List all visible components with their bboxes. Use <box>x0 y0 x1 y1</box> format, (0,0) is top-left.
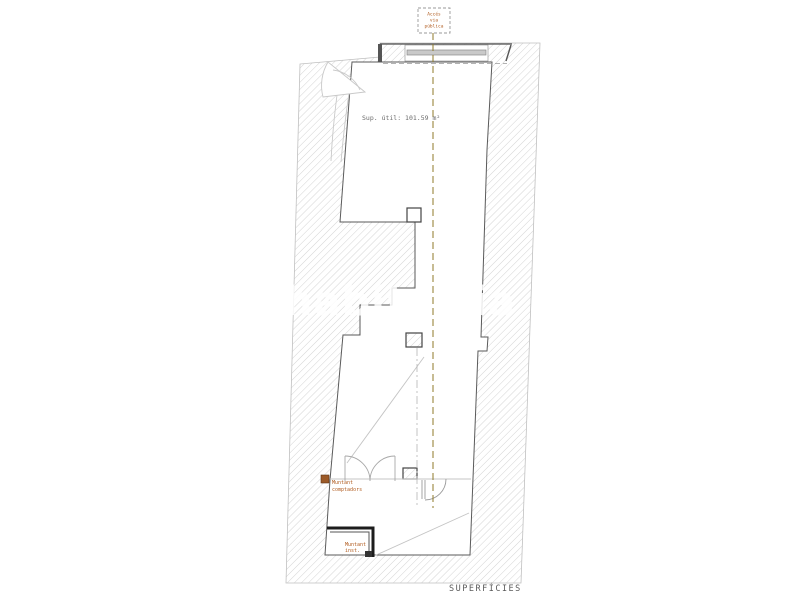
column-top <box>407 208 421 222</box>
sheet-title: SUPERFÍCIES <box>449 582 522 594</box>
column-middle <box>406 333 422 347</box>
street-access-label-line2: via <box>430 18 438 24</box>
facade-left-cap <box>378 44 382 62</box>
partition-wall-post <box>365 551 372 557</box>
storefront-window <box>407 50 486 55</box>
area-label: Sup. útil: 101.59 m² <box>362 114 440 122</box>
street-access-box: Accés via pública <box>418 8 450 33</box>
street-access-label-line1: Accés <box>427 11 441 18</box>
meter-cabinet-icon <box>321 475 329 483</box>
meter-label-line1: Muntant <box>332 480 353 486</box>
utility-label-line2: inst. <box>345 548 360 554</box>
column-bottom <box>403 468 417 479</box>
meter-label-line2: comptadors <box>332 487 362 493</box>
watermark: habitaclia <box>284 279 516 325</box>
floor-plan-svg: Accés via pública Sup. útil: 101.59 m² M… <box>0 0 800 600</box>
street-access-label-line3: pública <box>425 23 444 30</box>
floor-plan-sheet: Accés via pública Sup. útil: 101.59 m² M… <box>0 0 800 600</box>
